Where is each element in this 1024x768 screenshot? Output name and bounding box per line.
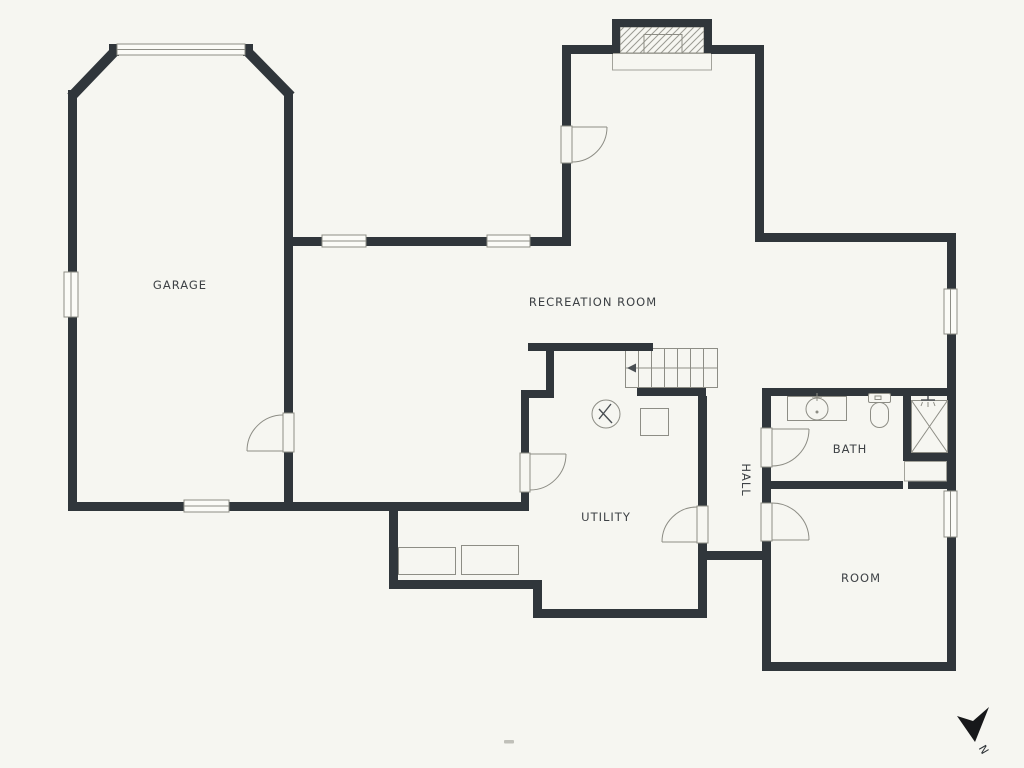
door-garage bbox=[247, 415, 283, 451]
shower-head-icon bbox=[921, 396, 935, 407]
wall-rec-left-upper bbox=[562, 45, 571, 126]
window-garage-bottom bbox=[184, 500, 229, 512]
watermark-dash bbox=[504, 740, 514, 744]
window-garage-left bbox=[64, 272, 78, 317]
wall-room-left-upper bbox=[762, 489, 771, 503]
stair-hatch bbox=[620, 27, 704, 53]
wall-stairwell-top bbox=[612, 19, 712, 27]
water-heater-icon bbox=[592, 400, 620, 428]
north-arrow-icon bbox=[957, 707, 989, 742]
stair-landing-outline bbox=[613, 54, 712, 71]
equipment-square bbox=[641, 409, 669, 436]
appliance-box-2 bbox=[462, 546, 519, 575]
label-room: ROOM bbox=[841, 571, 881, 585]
shower-icon bbox=[912, 396, 948, 453]
wall-bottom2 bbox=[389, 580, 542, 589]
window-divider-1 bbox=[322, 235, 366, 247]
label-hall: HALL bbox=[739, 463, 753, 496]
wall-step1-vertical bbox=[389, 502, 398, 588]
door-opening-bath bbox=[761, 428, 772, 467]
wall-stairwell-right bbox=[704, 19, 712, 53]
wall-utility-left-lower bbox=[521, 492, 529, 506]
window-right-lower bbox=[944, 491, 957, 537]
wall-room-bottom bbox=[762, 662, 956, 671]
wall-garage-angle-left bbox=[71, 49, 117, 97]
door-opening-room bbox=[761, 503, 772, 541]
main-stairs bbox=[626, 348, 719, 388]
label-garage: GARAGE bbox=[153, 278, 207, 292]
door-utility-left bbox=[530, 454, 566, 490]
wall-bath-left-lower bbox=[762, 467, 771, 481]
wall-hall-left-upper bbox=[698, 396, 707, 506]
window-divider-2 bbox=[487, 235, 530, 247]
wall-bath-left-upper bbox=[762, 396, 771, 428]
wall-room-left-lower bbox=[762, 541, 771, 670]
door-opening-utility-left bbox=[520, 453, 530, 492]
wall-utility-left-upper bbox=[521, 398, 529, 453]
door-opening-utility-hall bbox=[697, 506, 708, 543]
wall-utility-stub-h bbox=[521, 390, 554, 398]
wall-rec-left-lower bbox=[562, 163, 571, 246]
wall-rec-top-left bbox=[562, 45, 613, 54]
linen-nook bbox=[905, 462, 947, 482]
wall-top-right bbox=[755, 233, 956, 242]
sink-icon bbox=[788, 393, 847, 421]
toilet-icon bbox=[869, 394, 891, 428]
stair-direction-arrow-icon bbox=[627, 364, 636, 373]
floor-plan-canvas: GARAGE RECREATION ROOM UTILITY HALL BATH… bbox=[0, 0, 1024, 768]
door-bath bbox=[772, 429, 809, 466]
wall-shower-top bbox=[903, 388, 956, 396]
wall-utility-top bbox=[528, 343, 653, 351]
wall-utility-top-right bbox=[637, 388, 706, 396]
wall-garage-divider-lower bbox=[284, 452, 293, 507]
wall-garage-angle-right bbox=[245, 49, 291, 96]
compass: N bbox=[957, 707, 991, 757]
upper-stairs bbox=[613, 27, 712, 70]
floor-plan: GARAGE RECREATION ROOM UTILITY HALL BATH… bbox=[0, 0, 1024, 768]
door-recreation bbox=[572, 127, 607, 162]
wall-rec-right-upper bbox=[755, 45, 764, 242]
wall-bottom-left bbox=[68, 502, 529, 511]
window-garage-top bbox=[117, 44, 245, 55]
door-opening-recreation bbox=[561, 126, 572, 163]
label-recreation-room: RECREATION ROOM bbox=[529, 295, 657, 309]
wall-shower-bottom bbox=[903, 453, 956, 461]
door-room bbox=[772, 503, 809, 540]
door-opening-garage bbox=[283, 413, 294, 452]
walls bbox=[68, 19, 956, 671]
window-right-upper bbox=[944, 289, 957, 334]
wall-garage-divider-upper bbox=[284, 92, 293, 413]
label-utility: UTILITY bbox=[581, 510, 631, 524]
wall-shower-left bbox=[903, 396, 911, 453]
appliance-box-1 bbox=[399, 548, 456, 575]
wall-utility-bottom bbox=[533, 609, 707, 618]
wall-bath-room-divider bbox=[762, 481, 903, 489]
door-utility-hall bbox=[662, 507, 697, 542]
wall-bath-room-divider-right bbox=[908, 481, 947, 489]
label-bath: BATH bbox=[833, 442, 868, 456]
wall-stairwell-left bbox=[612, 19, 620, 53]
north-label: N bbox=[976, 743, 991, 757]
wall-hall-bottom bbox=[698, 551, 770, 560]
